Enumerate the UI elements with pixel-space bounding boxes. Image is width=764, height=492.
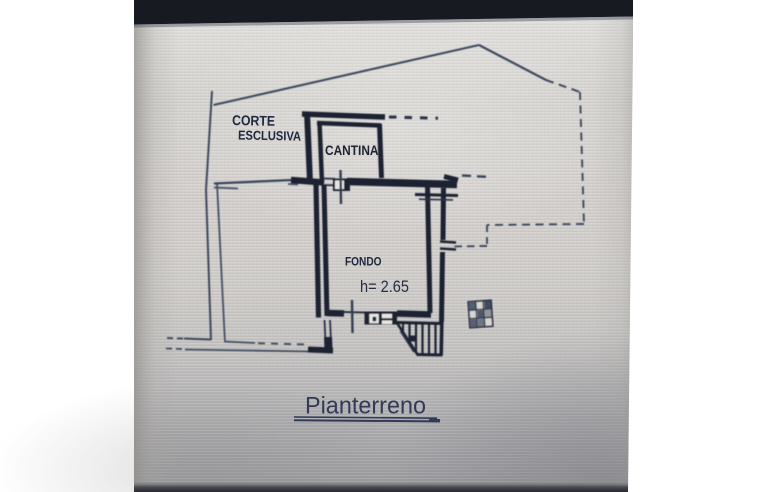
svg-text:Pianterreno: Pianterreno <box>305 393 426 420</box>
svg-text:CANTINA: CANTINA <box>325 143 379 158</box>
svg-text:CORTE: CORTE <box>232 112 275 129</box>
svg-text:h= 2.65: h= 2.65 <box>360 277 409 296</box>
svg-text:ESCLUSIVA: ESCLUSIVA <box>238 128 302 144</box>
svg-text:FONDO: FONDO <box>345 257 382 269</box>
